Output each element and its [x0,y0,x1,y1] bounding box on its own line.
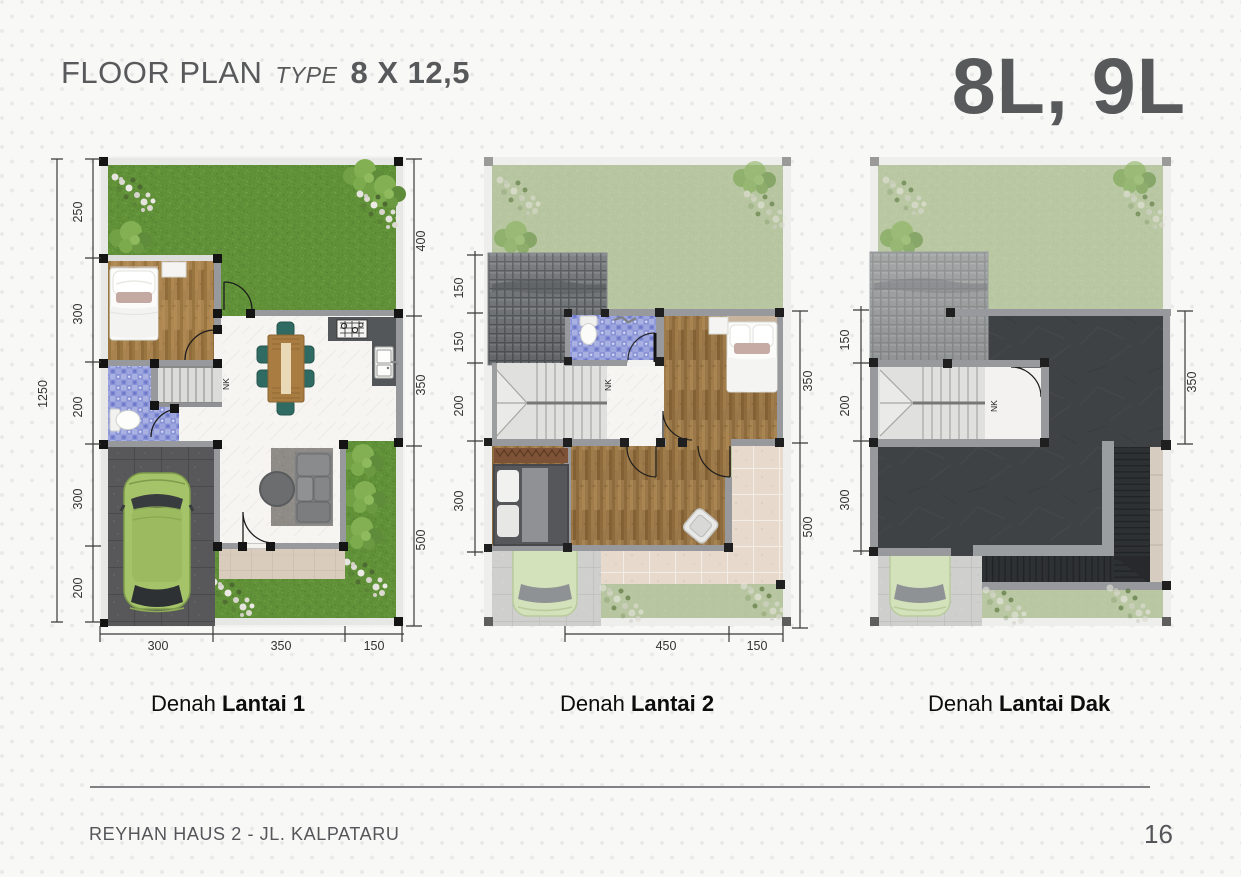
svg-text:400: 400 [414,231,428,252]
svg-text:200: 200 [838,396,852,417]
svg-text:150: 150 [838,330,852,351]
svg-text:500: 500 [801,517,815,538]
svg-text:350: 350 [1185,372,1199,393]
svg-text:150: 150 [452,332,466,353]
svg-text:150: 150 [452,278,466,299]
svg-text:NK: NK [603,379,613,391]
svg-text:300: 300 [452,491,466,512]
svg-text:150: 150 [747,639,768,653]
svg-text:300: 300 [148,639,169,653]
svg-text:NK: NK [221,378,231,390]
svg-text:350: 350 [414,375,428,396]
svg-text:1250: 1250 [36,380,50,408]
svg-text:200: 200 [71,397,85,418]
svg-text:450: 450 [656,639,677,653]
svg-text:200: 200 [71,578,85,599]
svg-text:350: 350 [801,371,815,392]
svg-text:300: 300 [71,489,85,510]
svg-text:250: 250 [71,202,85,223]
svg-text:350: 350 [271,639,292,653]
svg-text:300: 300 [838,490,852,511]
svg-text:200: 200 [452,396,466,417]
svg-text:500: 500 [414,530,428,551]
svg-text:300: 300 [71,304,85,325]
svg-text:NK: NK [989,400,999,412]
svg-text:150: 150 [364,639,385,653]
